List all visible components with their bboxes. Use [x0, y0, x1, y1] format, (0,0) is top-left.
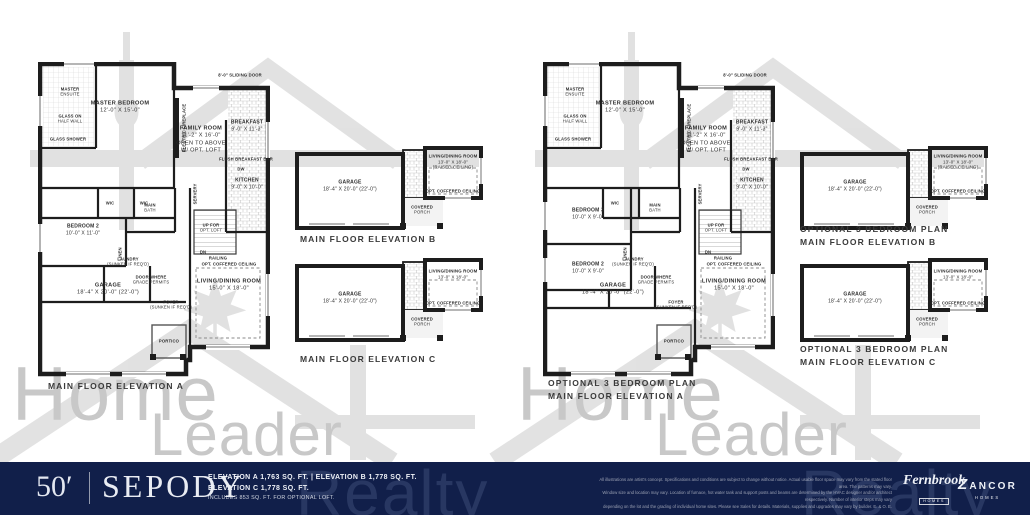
main-bath-label: MAINBATH	[649, 203, 660, 214]
garage-label: GARAGE18'-4" X 20'-0" (22'-0")	[77, 283, 139, 298]
coffered-label: OPT. COFFERED CEILING	[426, 300, 481, 305]
zancor-homes-logo: ZANCOR HOMES	[958, 476, 1017, 500]
laundry-label: LAUNDRY(SUNKEN IF REQ'D)	[107, 257, 149, 268]
breakfast-label: BREAKFAST9'-0" X 11'-3"	[231, 120, 263, 133]
glass-half-wall-label: GLASS ONHALF WALL	[563, 114, 587, 125]
foyer-label: FOYER(SUNKEN IF REQ'D)	[655, 300, 697, 311]
railing-label: RAILING	[209, 255, 227, 260]
lot-size: 50′	[36, 470, 73, 504]
main-bath-label: MAINBATH	[144, 203, 155, 214]
bedroom2-label: BEDROOM 210'-0" X 11'-0"	[66, 224, 100, 237]
coffered-label: OPT. COFFERED CEILING	[931, 188, 986, 193]
watermark-word-leader: Leader	[655, 401, 848, 468]
fernbrook-logo-name: Fernbrook	[903, 473, 965, 489]
fernbrook-homes-logo: Fernbrook HOMES	[903, 473, 965, 507]
footer-divider	[89, 472, 90, 504]
breakfast-label: BREAKFAST9'-0" X 11'-3"	[736, 120, 768, 133]
foyer-label: FOYER(SUNKEN IF REQ'D)	[150, 300, 192, 311]
fernbrook-logo-sub: HOMES	[919, 498, 949, 505]
living-label: LIVING/DINING ROOM13'-0" X 18'-0"(RAISED…	[934, 153, 983, 170]
flush-bar-label: FLUSH BREAKFAST BAR	[724, 156, 778, 161]
kitchen-label: KITCHEN9'-0" X 10'-0"	[231, 178, 263, 191]
caption-main-b: MAIN FLOOR ELEVATION B	[300, 234, 436, 244]
porch-label: COVEREDPORCH	[411, 205, 433, 216]
optional-3-bedroom-partial-plan-elevation-c: GARAGE18'-4" X 20'-0" (22'-0")LIVING/DIN…	[800, 258, 988, 354]
porch-label: COVEREDPORCH	[411, 317, 433, 328]
portico-label: PORTICO	[159, 338, 179, 343]
zancor-logo-name: ZANCOR	[958, 476, 1017, 493]
floorplan-sheet: Home Leader Home Leader	[0, 0, 1030, 515]
master-bedroom-label: MASTER BEDROOM12'-0" X 15'-0"	[596, 101, 655, 116]
coffered-label: OPT. COFFERED CEILING	[426, 188, 481, 193]
caption-main-a: MAIN FLOOR ELEVATION A	[48, 381, 184, 391]
main-floor-plan-elevation-a: MASTER BEDROOM12'-0" X 15'-0"MASTERENSUI…	[38, 62, 270, 382]
partial-plan-elevation-b: GARAGE18'-4" X 20'-0" (22'-0")LIVING/DIN…	[295, 146, 483, 242]
laundry-label: LAUNDRY(SUNKEN IF REQ'D)	[612, 257, 654, 268]
optional-3-bedroom-plan-elevation-a: MASTER BEDROOM12'-0" X 15'-0"MASTERENSUI…	[543, 62, 775, 382]
coffered-label: OPT. COFFERED CEILING	[707, 261, 762, 266]
footer-bar: Realty Realty 50′ SEPODY ELEVATION A 1,7…	[0, 462, 1030, 515]
dw-label: DW	[742, 166, 749, 171]
caption-opt-b-line2: MAIN FLOOR ELEVATION B	[800, 237, 936, 247]
garage-label: GARAGE18'-4" X 20'-0" (22'-0")	[828, 180, 882, 193]
caption-opt-a-line2: MAIN FLOOR ELEVATION A	[548, 391, 684, 401]
wic-a-label: WIC	[106, 200, 115, 205]
disclaimer-line: Window size and location may vary. Locat…	[592, 490, 892, 503]
caption-opt-c-line2: MAIN FLOOR ELEVATION C	[800, 357, 936, 367]
elevation-summary: ELEVATION A 1,763 SQ. FT. | ELEVATION B …	[208, 472, 417, 501]
watermark-word-leader: Leader	[150, 401, 343, 468]
living-label: LIVING/DINING ROOM13'-0" X 18'-0"	[934, 268, 983, 279]
kitchen-label: KITCHEN9'-0" X 10'-0"	[736, 178, 768, 191]
master-ensuite-label: MASTERENSUITE	[60, 87, 79, 98]
portico-label: PORTICO	[664, 338, 684, 343]
living-dining-label: LIVING/DINING ROOM15'-0" X 18'-0"	[197, 279, 261, 294]
dn-label: DN	[200, 249, 206, 254]
glass-half-wall-label: GLASS ONHALF WALL	[58, 114, 82, 125]
servery-label: SERVERY	[192, 184, 197, 205]
caption-opt-b-line1: OPTIONAL 3 BEDROOM PLAN	[800, 224, 948, 234]
partial-plan-elevation-c: GARAGE18'-4" X 20'-0" (22'-0")LIVING/DIN…	[295, 258, 483, 354]
up-loft-label: UP FOROPT. LOFT	[705, 223, 728, 234]
caption-opt-c-line1: OPTIONAL 3 BEDROOM PLAN	[800, 344, 948, 354]
dw-label: DW	[237, 166, 244, 171]
caption-opt-a-line1: OPTIONAL 3 BEDROOM PLAN	[548, 378, 696, 388]
elevation-line-3: INCLUDES 853 SQ. FT. FOR OPTIONAL LOFT.	[208, 495, 417, 501]
master-ensuite-label: MASTERENSUITE	[565, 87, 584, 98]
living-label: LIVING/DINING ROOM13'-0" X 18'-0"	[429, 268, 478, 279]
servery-label: SERVERY	[697, 184, 702, 205]
zancor-logo-sub: HOMES	[958, 495, 1017, 500]
bedroom3-label: BEDROOM 310'-0" X 9'-0"	[572, 208, 604, 221]
sliding-door-label: 8'-0" SLIDING DOOR	[218, 72, 262, 77]
garage-label: GARAGE18'-4" X 20'-0" (22'-0")	[323, 292, 377, 305]
glass-shower-label: GLASS SHOWER	[50, 136, 86, 141]
porch-label: COVEREDPORCH	[916, 317, 938, 328]
living-label: LIVING/DINING ROOM13'-0" X 18'-0"(RAISED…	[429, 153, 478, 170]
glass-shower-label: GLASS SHOWER	[555, 136, 591, 141]
wic-a-label: WIC	[611, 200, 620, 205]
up-loft-label: UP FOROPT. LOFT	[200, 223, 223, 234]
master-bedroom-label: MASTER BEDROOM12'-0" X 15'-0"	[91, 101, 150, 116]
living-dining-label: LIVING/DINING ROOM15'-0" X 18'-0"	[702, 279, 766, 294]
disclaimer-line: All illustrations are artist's concept. …	[592, 477, 892, 490]
electric-fireplace-label: ELECTRIC FIREPLACE	[181, 104, 186, 153]
garage-label: GARAGE18'-4" X 20'-0" (22'-0")	[323, 180, 377, 193]
bedroom2-label: BEDROOM 210'-0" X 9'-0"	[572, 262, 604, 275]
flush-bar-label: FLUSH BREAKFAST BAR	[219, 156, 273, 161]
garage-label: GARAGE18'-4" X 20'-0" (22'-0")	[828, 292, 882, 305]
disclaimer: All illustrations are artist's concept. …	[592, 477, 892, 511]
elevation-line-2: ELEVATION C 1,778 SQ. FT.	[208, 483, 417, 494]
coffered-label: OPT. COFFERED CEILING	[931, 300, 986, 305]
coffered-label: OPT. COFFERED CEILING	[202, 261, 257, 266]
sliding-door-label: 8'-0" SLIDING DOOR	[723, 72, 767, 77]
elevation-line-1: ELEVATION A 1,763 SQ. FT. | ELEVATION B …	[208, 472, 417, 483]
caption-main-c: MAIN FLOOR ELEVATION C	[300, 354, 436, 364]
electric-fireplace-label: ELECTRIC FIREPLACE	[686, 104, 691, 153]
garage-label: GARAGE18'-4" X 20'-0" (22'-0")	[582, 283, 644, 298]
porch-label: COVEREDPORCH	[916, 205, 938, 216]
disclaimer-line: depending on the lot and the grading of …	[592, 504, 892, 511]
dn-label: DN	[705, 249, 711, 254]
railing-label: RAILING	[714, 255, 732, 260]
